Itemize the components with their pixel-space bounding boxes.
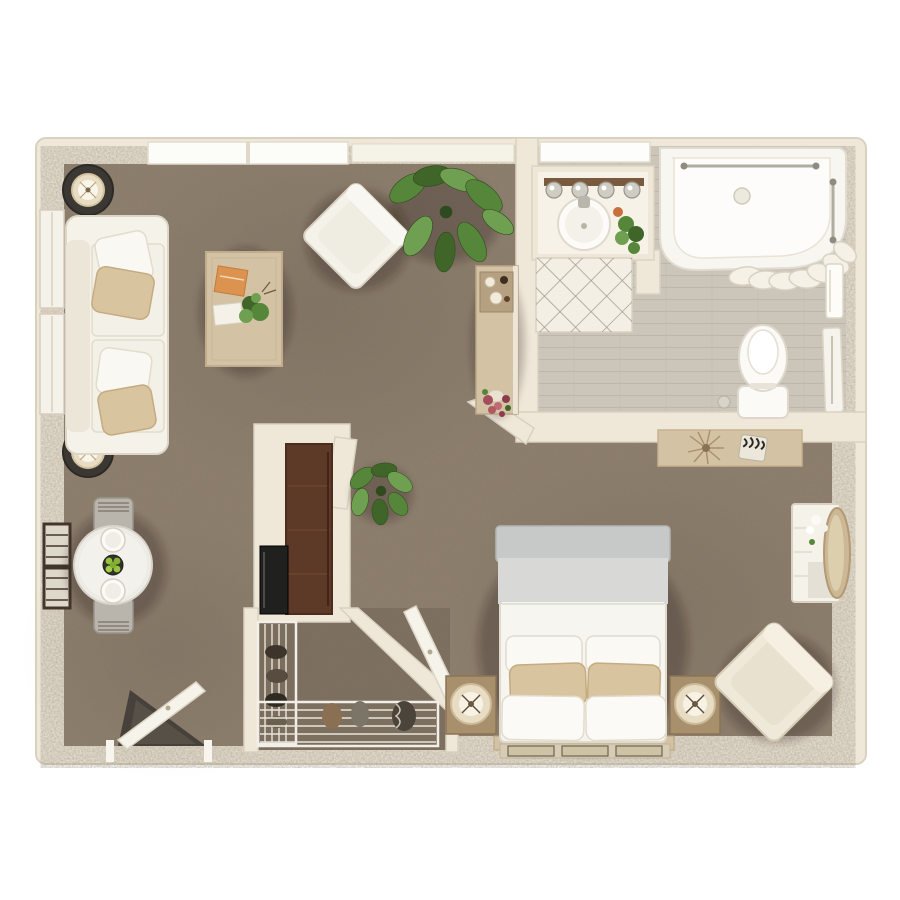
faucet-icon xyxy=(578,196,590,208)
plant-center-2 xyxy=(376,486,386,496)
white-book xyxy=(213,303,243,326)
media-console-top xyxy=(658,430,802,466)
closet-door-handle xyxy=(428,650,433,655)
bed-runner xyxy=(500,744,670,758)
tub-drain xyxy=(734,188,750,204)
sofa-back xyxy=(66,240,90,432)
nightstand-right xyxy=(670,676,720,734)
bathtub xyxy=(660,148,846,270)
plate-inner-top xyxy=(105,532,121,548)
bar-console xyxy=(476,266,518,417)
entry-door-handle xyxy=(166,706,171,711)
mirror-glass xyxy=(828,515,844,591)
plant-center xyxy=(440,206,452,218)
pillow-beige-top xyxy=(90,265,155,320)
cup-3 xyxy=(490,292,502,304)
queen-bed xyxy=(494,526,674,750)
door-frame-left xyxy=(106,740,114,762)
zebra-box xyxy=(738,434,767,461)
floor-plan-image xyxy=(0,0,900,900)
table-lamp-left xyxy=(451,684,491,724)
lattice-rug-pattern xyxy=(536,258,632,332)
towel-bar-end-2 xyxy=(813,163,820,170)
pillow-front-left xyxy=(502,695,585,740)
sink-drain xyxy=(581,223,587,229)
closet-left-wall xyxy=(244,608,258,752)
bar-console-edge xyxy=(513,266,518,414)
cup-2 xyxy=(500,276,508,284)
tall-brown-cabinet xyxy=(286,444,332,614)
media-console xyxy=(658,430,802,466)
bathroom-window xyxy=(540,142,650,162)
nightstand-left xyxy=(446,676,496,734)
door-frame-right xyxy=(204,740,212,762)
table-lamp-right xyxy=(675,684,715,724)
dried-plant-pot xyxy=(702,444,710,452)
floor-plan-svg xyxy=(0,0,900,900)
pillow-front-right xyxy=(586,695,667,740)
cup-1 xyxy=(485,277,495,287)
lamp-finial xyxy=(86,188,91,193)
dark-window-bottom xyxy=(44,568,70,608)
toilet-seat xyxy=(748,330,778,374)
flush-button xyxy=(718,396,730,408)
gray-duvet xyxy=(496,526,670,562)
wall-towel xyxy=(826,264,843,318)
toilet-hinge xyxy=(750,383,776,389)
duvet-lower xyxy=(498,558,668,604)
dark-window-top xyxy=(44,524,70,566)
plant-pot xyxy=(613,207,623,217)
cup-4 xyxy=(504,296,510,302)
orange-book xyxy=(214,266,248,296)
dresser xyxy=(792,504,850,602)
towel-bar-end-1 xyxy=(681,163,688,170)
top-wall-window-right xyxy=(352,144,514,162)
towel-bar-end-3 xyxy=(830,179,837,186)
bathtub-basin xyxy=(672,158,830,258)
fruit-bowl xyxy=(103,555,123,575)
pillow-beige-bottom xyxy=(97,384,158,437)
sofa xyxy=(66,216,168,454)
plate-inner-bottom xyxy=(105,583,121,599)
vanity-counter xyxy=(532,166,654,260)
coffee-table xyxy=(206,252,282,366)
floor-lamp-top xyxy=(63,165,113,215)
